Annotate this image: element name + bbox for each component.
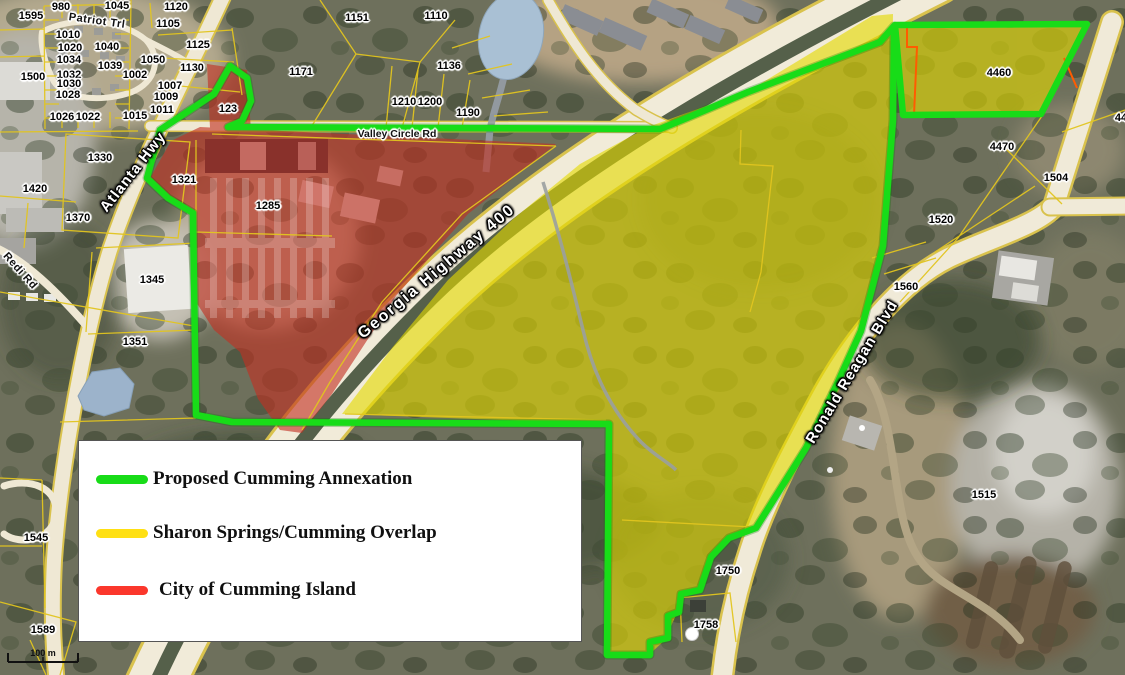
legend-label-overlap: Sharon Springs/Cumming Overlap <box>153 522 437 544</box>
legend-label-annexation: Proposed Cumming Annexation <box>153 468 412 490</box>
annexation-map: 100 m 9801045112015951105101011251020104… <box>0 0 1125 675</box>
legend-swatch-overlap <box>96 529 148 538</box>
scale-bar-label: 100 m <box>30 648 56 658</box>
water-tank-dot <box>686 628 699 641</box>
legend: Proposed Cumming Annexation Sharon Sprin… <box>78 440 582 642</box>
tower-structure <box>690 600 706 612</box>
big-box-building <box>124 245 192 313</box>
legend-swatch-annexation <box>96 475 148 484</box>
legend-swatch-island <box>96 586 148 595</box>
legend-label-island: City of Cumming Island <box>159 579 356 601</box>
